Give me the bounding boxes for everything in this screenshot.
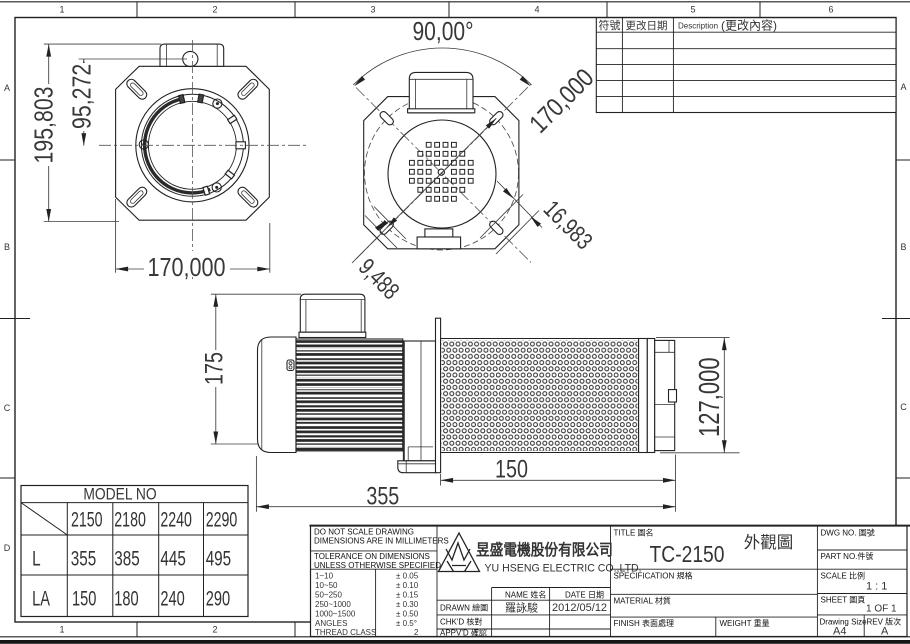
svg-text:MATERIAL 材質: MATERIAL 材質 <box>614 596 671 606</box>
svg-text:2150: 2150 <box>71 508 103 532</box>
svg-text:NAME 姓名: NAME 姓名 <box>505 590 546 600</box>
svg-text:A: A <box>4 83 10 93</box>
svg-text:240: 240 <box>160 586 184 611</box>
svg-text:PART NO.件號: PART NO.件號 <box>821 551 874 561</box>
svg-text:4: 4 <box>534 5 539 15</box>
svg-text:A: A <box>881 626 889 638</box>
svg-text:385: 385 <box>114 546 139 570</box>
svg-text:THREAD CLASS: THREAD CLASS <box>315 628 376 637</box>
svg-text:ANGLES: ANGLES <box>315 619 347 628</box>
svg-text:355: 355 <box>366 482 399 510</box>
svg-text:2: 2 <box>212 5 217 15</box>
svg-text:± 0.30: ± 0.30 <box>396 600 419 609</box>
svg-text:昱盛電機股份有限公司: 昱盛電機股份有限公司 <box>476 540 613 559</box>
svg-text:SPECIFICATION 規格: SPECIFICATION 規格 <box>614 571 693 581</box>
svg-text:± 0.15: ± 0.15 <box>396 591 419 600</box>
svg-text:DWG NO. 圖號: DWG NO. 圖號 <box>821 528 875 538</box>
svg-text:10~50: 10~50 <box>315 581 338 590</box>
svg-text:SCALE 比例: SCALE 比例 <box>821 571 865 581</box>
svg-text:195,803: 195,803 <box>30 86 60 163</box>
svg-text:DRAWN 繪圖: DRAWN 繪圖 <box>440 603 488 613</box>
svg-text:150: 150 <box>72 586 96 611</box>
svg-text:MODEL NO: MODEL NO <box>83 485 156 503</box>
svg-text:L: L <box>32 546 40 570</box>
svg-text:90,00°: 90,00° <box>412 18 473 47</box>
svg-text:495: 495 <box>206 546 231 570</box>
svg-text:(更改內容): (更改內容) <box>721 18 777 33</box>
svg-text:更改日期: 更改日期 <box>626 19 668 32</box>
svg-text:1: 1 <box>59 625 64 635</box>
svg-text:A: A <box>900 82 906 92</box>
svg-text:FINISH 表面處理: FINISH 表面處理 <box>614 618 674 628</box>
svg-text:180: 180 <box>114 586 138 611</box>
svg-text:TC-2150: TC-2150 <box>650 541 725 567</box>
svg-text:羅詠駿: 羅詠駿 <box>505 601 538 615</box>
svg-text:170,000: 170,000 <box>148 253 226 282</box>
svg-text:290: 290 <box>206 586 230 611</box>
svg-text:B: B <box>900 242 906 252</box>
svg-text:DO NOT SCALE DRAWING: DO NOT SCALE DRAWING <box>314 528 414 537</box>
svg-text:2290: 2290 <box>206 508 238 532</box>
svg-text:APPV'D 確認: APPV'D 確認 <box>440 628 487 638</box>
svg-text:175: 175 <box>200 352 228 385</box>
svg-text:DIMENSIONS ARE IN MILLIMETERS: DIMENSIONS ARE IN MILLIMETERS <box>314 537 449 546</box>
svg-text:符號: 符號 <box>599 19 621 32</box>
svg-text:2: 2 <box>414 628 419 637</box>
svg-text:445: 445 <box>160 546 185 570</box>
svg-text:TOLERANCE ON DIMENSIONS: TOLERANCE ON DIMENSIONS <box>314 552 430 561</box>
svg-text:2180: 2180 <box>114 508 146 532</box>
svg-text:± 0.10: ± 0.10 <box>396 581 419 590</box>
svg-text:CHK'D 核對: CHK'D 核對 <box>440 617 482 627</box>
svg-text:1 : 1: 1 : 1 <box>866 581 887 593</box>
svg-text:TITLE 圖名: TITLE 圖名 <box>614 528 654 538</box>
svg-text:外觀圖: 外觀圖 <box>744 533 794 552</box>
svg-text:1~10: 1~10 <box>315 572 334 581</box>
svg-text:6: 6 <box>828 5 833 15</box>
svg-text:2: 2 <box>212 625 217 635</box>
svg-text:150: 150 <box>495 455 528 483</box>
svg-text:2012/05/12: 2012/05/12 <box>552 602 607 614</box>
svg-text:± 0.50: ± 0.50 <box>396 610 419 619</box>
svg-text:B: B <box>4 242 10 252</box>
svg-text:1 OF 1: 1 OF 1 <box>866 604 897 615</box>
svg-text:1: 1 <box>59 5 64 15</box>
svg-text:LA: LA <box>32 586 50 611</box>
svg-text:SHEET 圖頁: SHEET 圖頁 <box>821 596 866 605</box>
svg-text:355: 355 <box>71 546 96 570</box>
svg-text:127,000: 127,000 <box>694 357 726 437</box>
svg-text:95,272: 95,272 <box>68 64 98 129</box>
svg-text:5: 5 <box>690 5 695 15</box>
svg-text:D: D <box>4 543 11 553</box>
svg-text:1000~1500: 1000~1500 <box>315 610 356 619</box>
svg-text:Description: Description <box>678 22 718 31</box>
svg-text:50~250: 50~250 <box>315 591 342 600</box>
svg-text:DATE 日期: DATE 日期 <box>565 591 604 600</box>
svg-text:2240: 2240 <box>160 508 192 532</box>
svg-text:250~1000: 250~1000 <box>315 600 351 609</box>
svg-text:± 0.5°: ± 0.5° <box>396 619 417 628</box>
svg-text:A4: A4 <box>833 626 846 638</box>
svg-text:WEIGHT 重量: WEIGHT 重量 <box>720 618 770 628</box>
svg-text:3: 3 <box>370 5 375 15</box>
svg-text:± 0.05: ± 0.05 <box>396 572 419 581</box>
svg-text:C: C <box>900 402 907 412</box>
svg-text:UNLESS OTHERWISE SPECIFIED: UNLESS OTHERWISE SPECIFIED <box>314 561 441 570</box>
svg-text:C: C <box>4 403 11 413</box>
